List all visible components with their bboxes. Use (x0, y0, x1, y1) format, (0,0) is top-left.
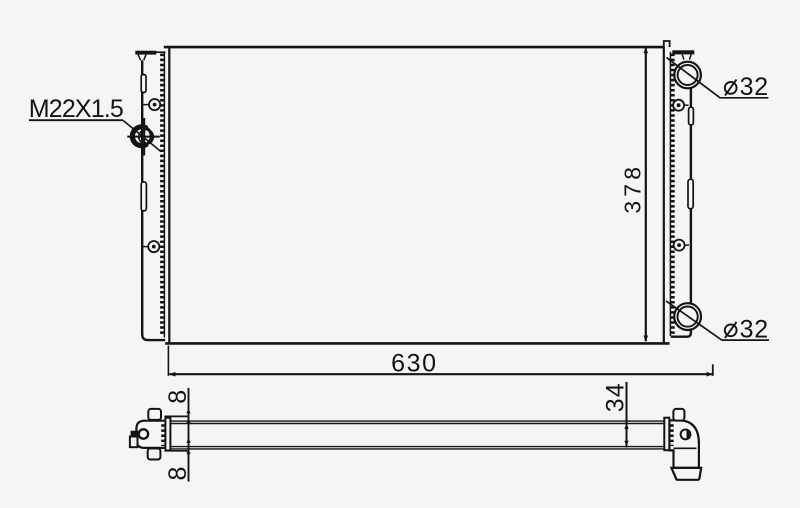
svg-text:8: 8 (164, 467, 192, 481)
svg-text:378: 378 (620, 163, 646, 214)
svg-text:32: 32 (740, 315, 769, 343)
svg-text:8: 8 (164, 390, 192, 404)
svg-text:630: 630 (391, 349, 438, 377)
svg-text:M22X1.5: M22X1.5 (29, 95, 123, 123)
svg-text:34: 34 (601, 382, 629, 412)
svg-text:32: 32 (740, 73, 769, 101)
